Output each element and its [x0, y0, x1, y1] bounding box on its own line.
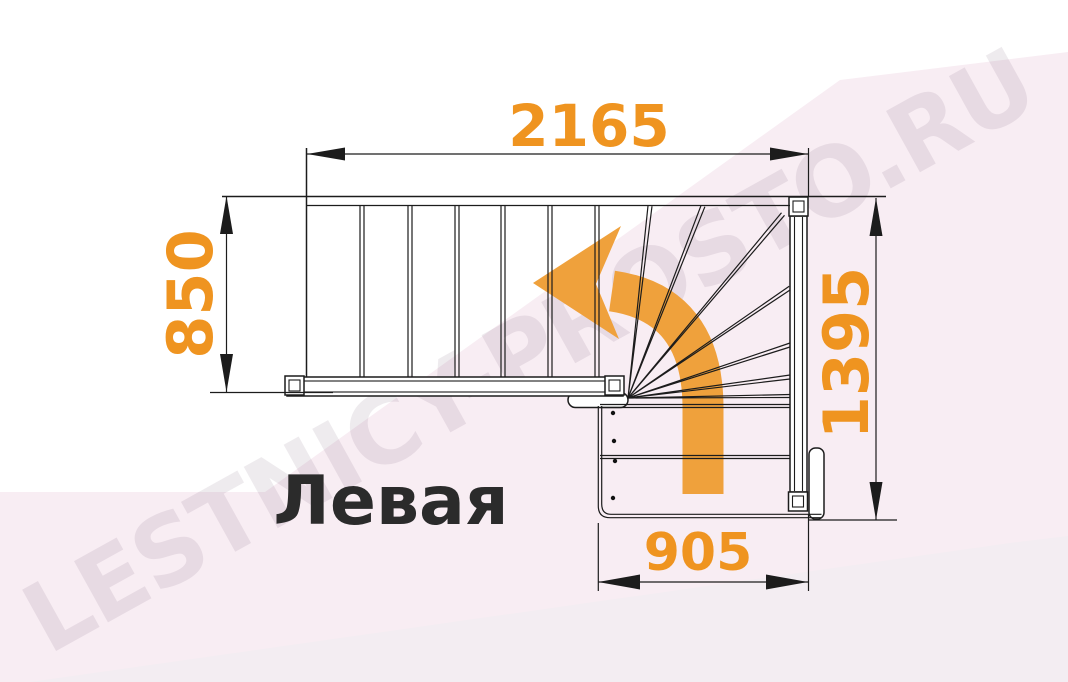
- stair-direction-label: Левая: [273, 462, 508, 541]
- newel-post-bottom-right: [789, 492, 808, 511]
- lower-flight-right-stringer: [809, 448, 824, 519]
- plan-canvas: LESTNICY-PROSTO.RU: [0, 0, 1068, 682]
- dim-value-top: 2165: [508, 92, 669, 160]
- upper-flight-bottom-rail: [287, 377, 623, 396]
- dim-value-bottom: 905: [644, 523, 753, 583]
- dim-value-right: 1395: [810, 267, 883, 440]
- dim-value-left: 850: [154, 229, 227, 358]
- right-rail: [790, 216, 807, 492]
- newel-post-top-right: [789, 197, 808, 216]
- newel-post-center: [605, 376, 624, 395]
- staircase-plan-drawing: LESTNICY-PROSTO.RU: [0, 0, 1068, 682]
